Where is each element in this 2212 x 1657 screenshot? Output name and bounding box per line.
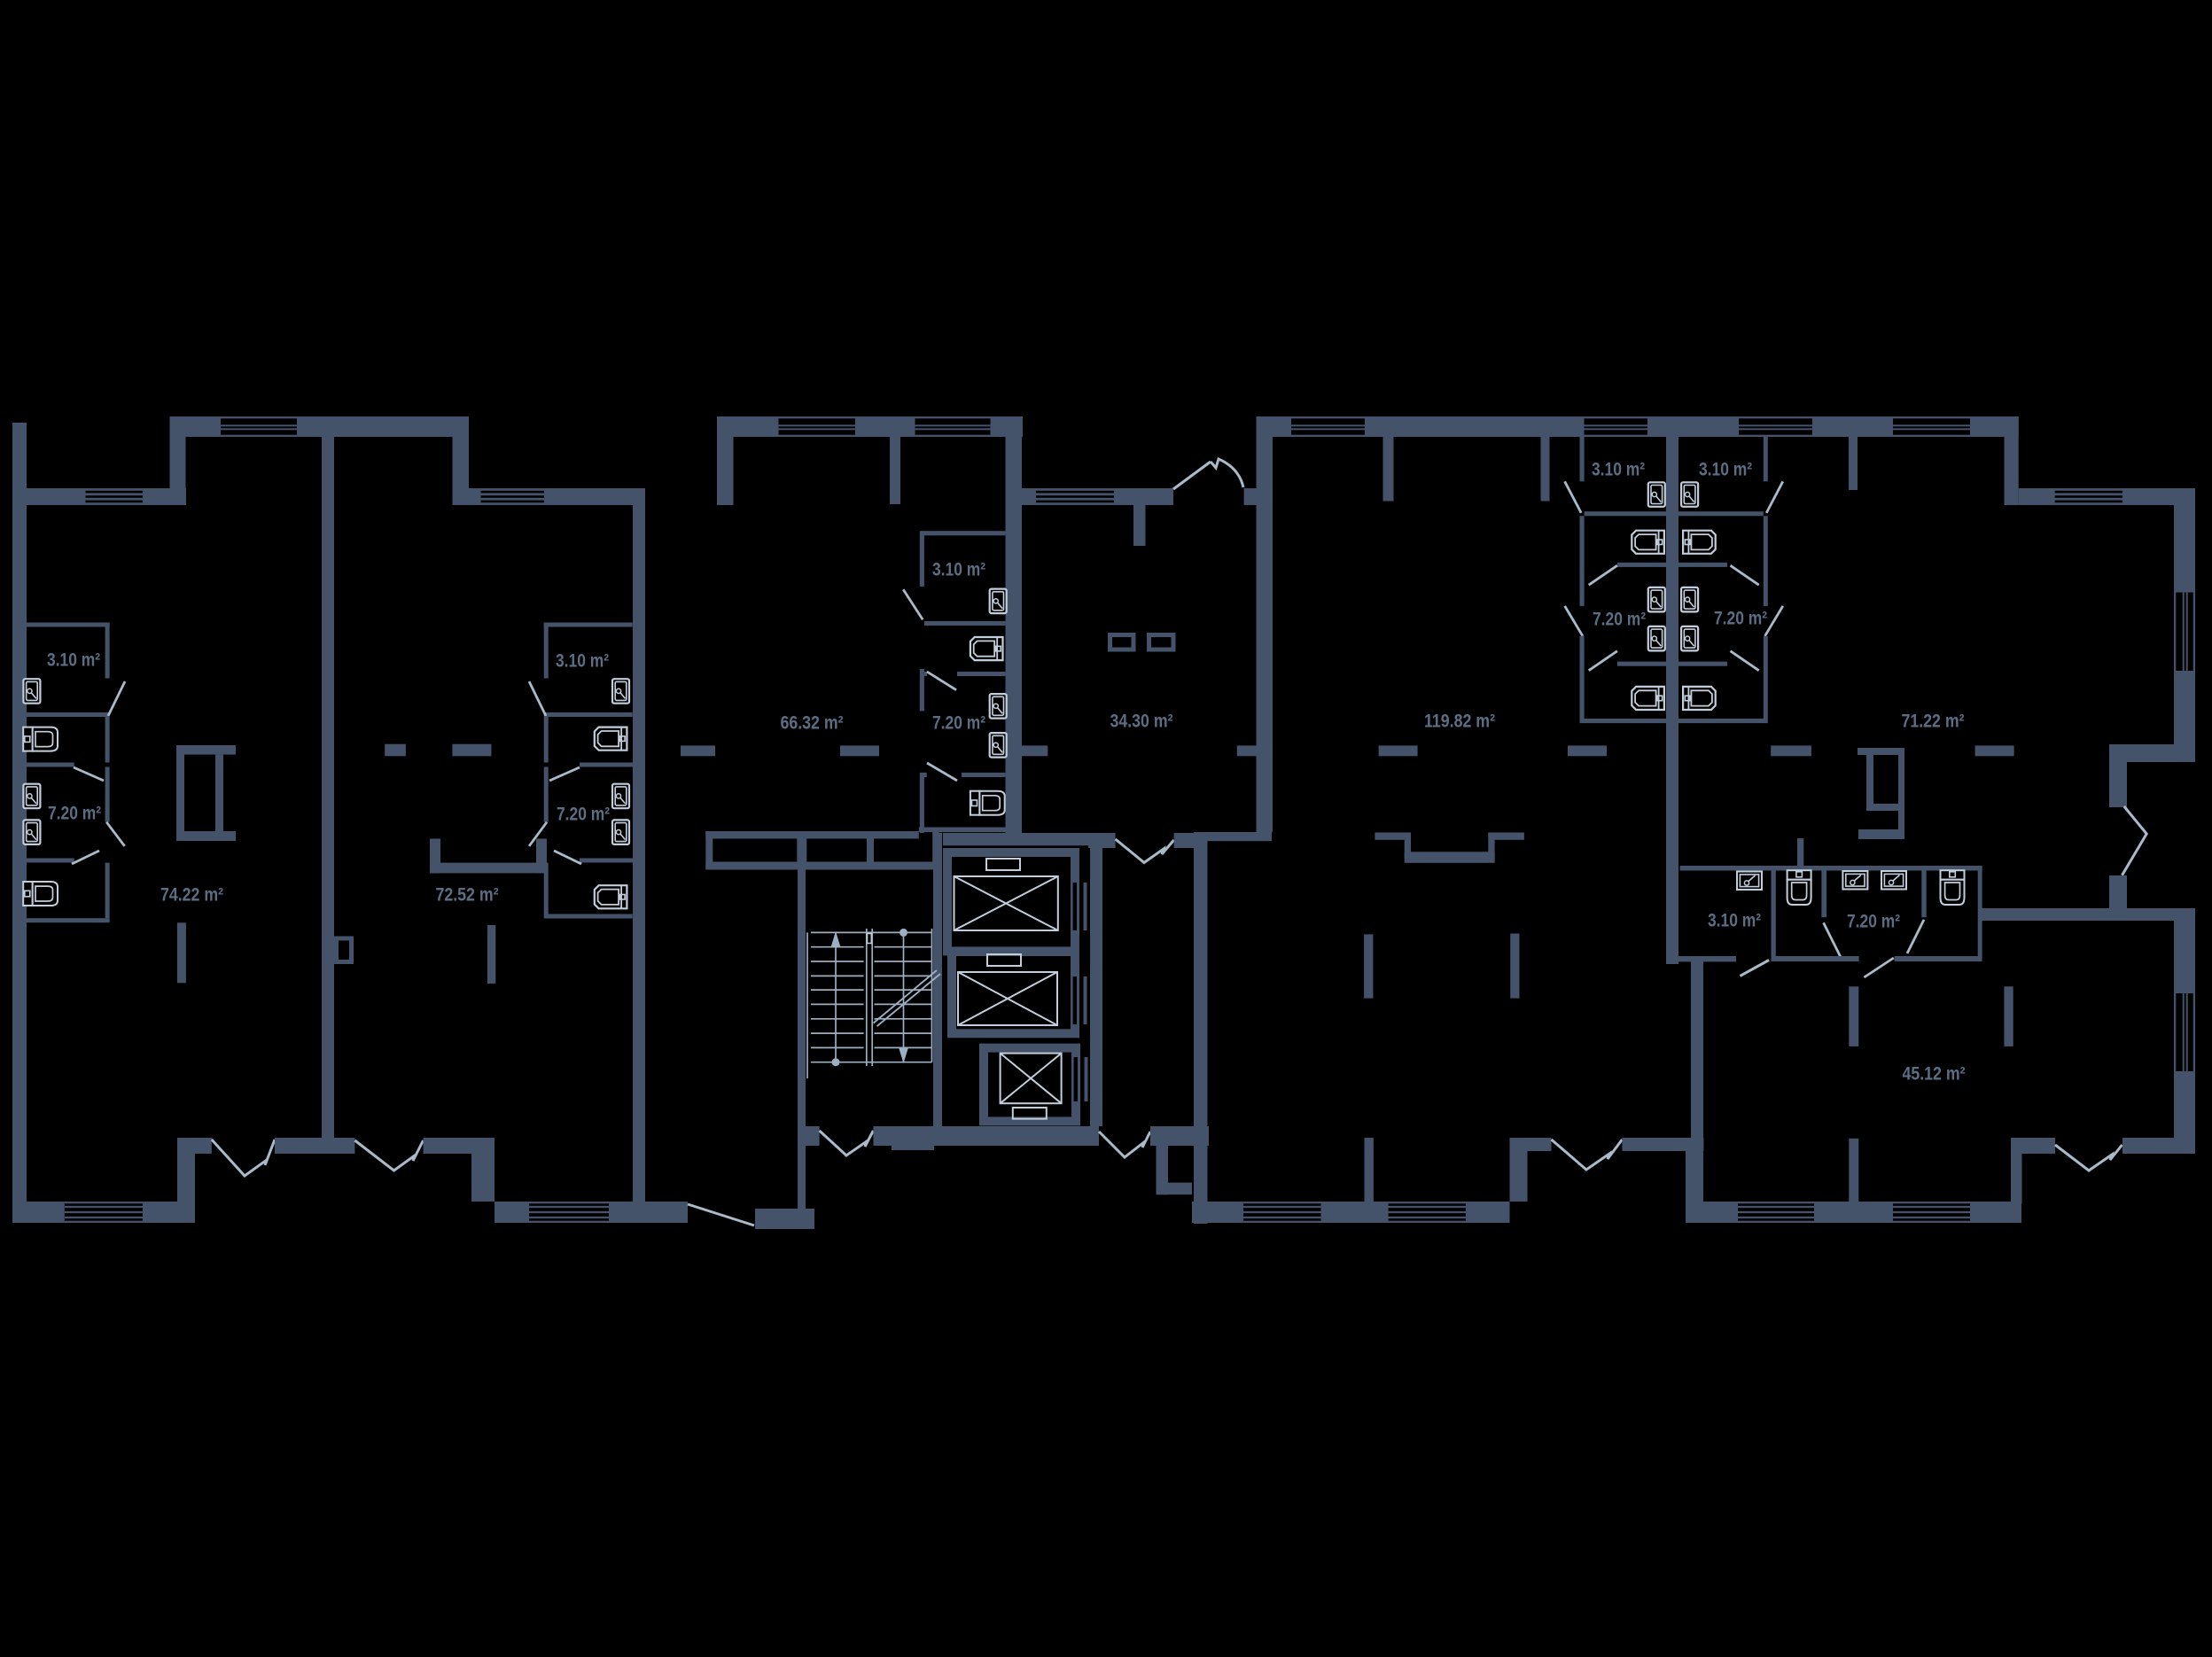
svg-text:7.20 m²: 7.20 m² [932, 713, 985, 734]
svg-text:71.22 m²: 71.22 m² [1902, 712, 1965, 732]
svg-text:7.20 m²: 7.20 m² [1714, 609, 1767, 629]
svg-text:3.10 m²: 3.10 m² [1592, 460, 1645, 480]
svg-text:74.22 m²: 74.22 m² [160, 885, 223, 906]
svg-text:72.52 m²: 72.52 m² [436, 885, 499, 906]
svg-text:45.12 m²: 45.12 m² [1903, 1064, 1966, 1085]
svg-text:3.10 m²: 3.10 m² [556, 651, 609, 672]
svg-text:7.20 m²: 7.20 m² [1593, 610, 1646, 630]
svg-text:3.10 m²: 3.10 m² [1708, 911, 1761, 931]
svg-text:3.10 m²: 3.10 m² [932, 560, 985, 580]
svg-text:3.10 m²: 3.10 m² [47, 650, 100, 671]
svg-text:7.20 m²: 7.20 m² [557, 805, 610, 825]
svg-text:66.32 m²: 66.32 m² [781, 713, 844, 734]
svg-text:119.82 m²: 119.82 m² [1424, 712, 1495, 732]
svg-text:7.20 m²: 7.20 m² [1847, 912, 1900, 932]
svg-text:7.20 m²: 7.20 m² [48, 804, 101, 824]
svg-text:3.10 m²: 3.10 m² [1699, 460, 1752, 480]
svg-text:34.30 m²: 34.30 m² [1110, 712, 1173, 732]
